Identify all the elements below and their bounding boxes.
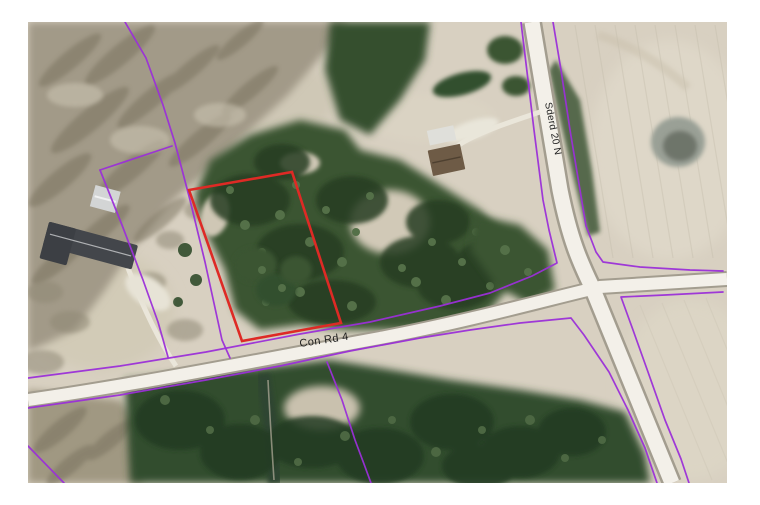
screenshot: Con Rd 4 Sderd 20 N (0, 0, 760, 505)
pond (651, 117, 705, 167)
aerial-photo-canvas: Con Rd 4 Sderd 20 N (0, 0, 760, 505)
aerial-photo: Con Rd 4 Sderd 20 N (20, 15, 760, 490)
